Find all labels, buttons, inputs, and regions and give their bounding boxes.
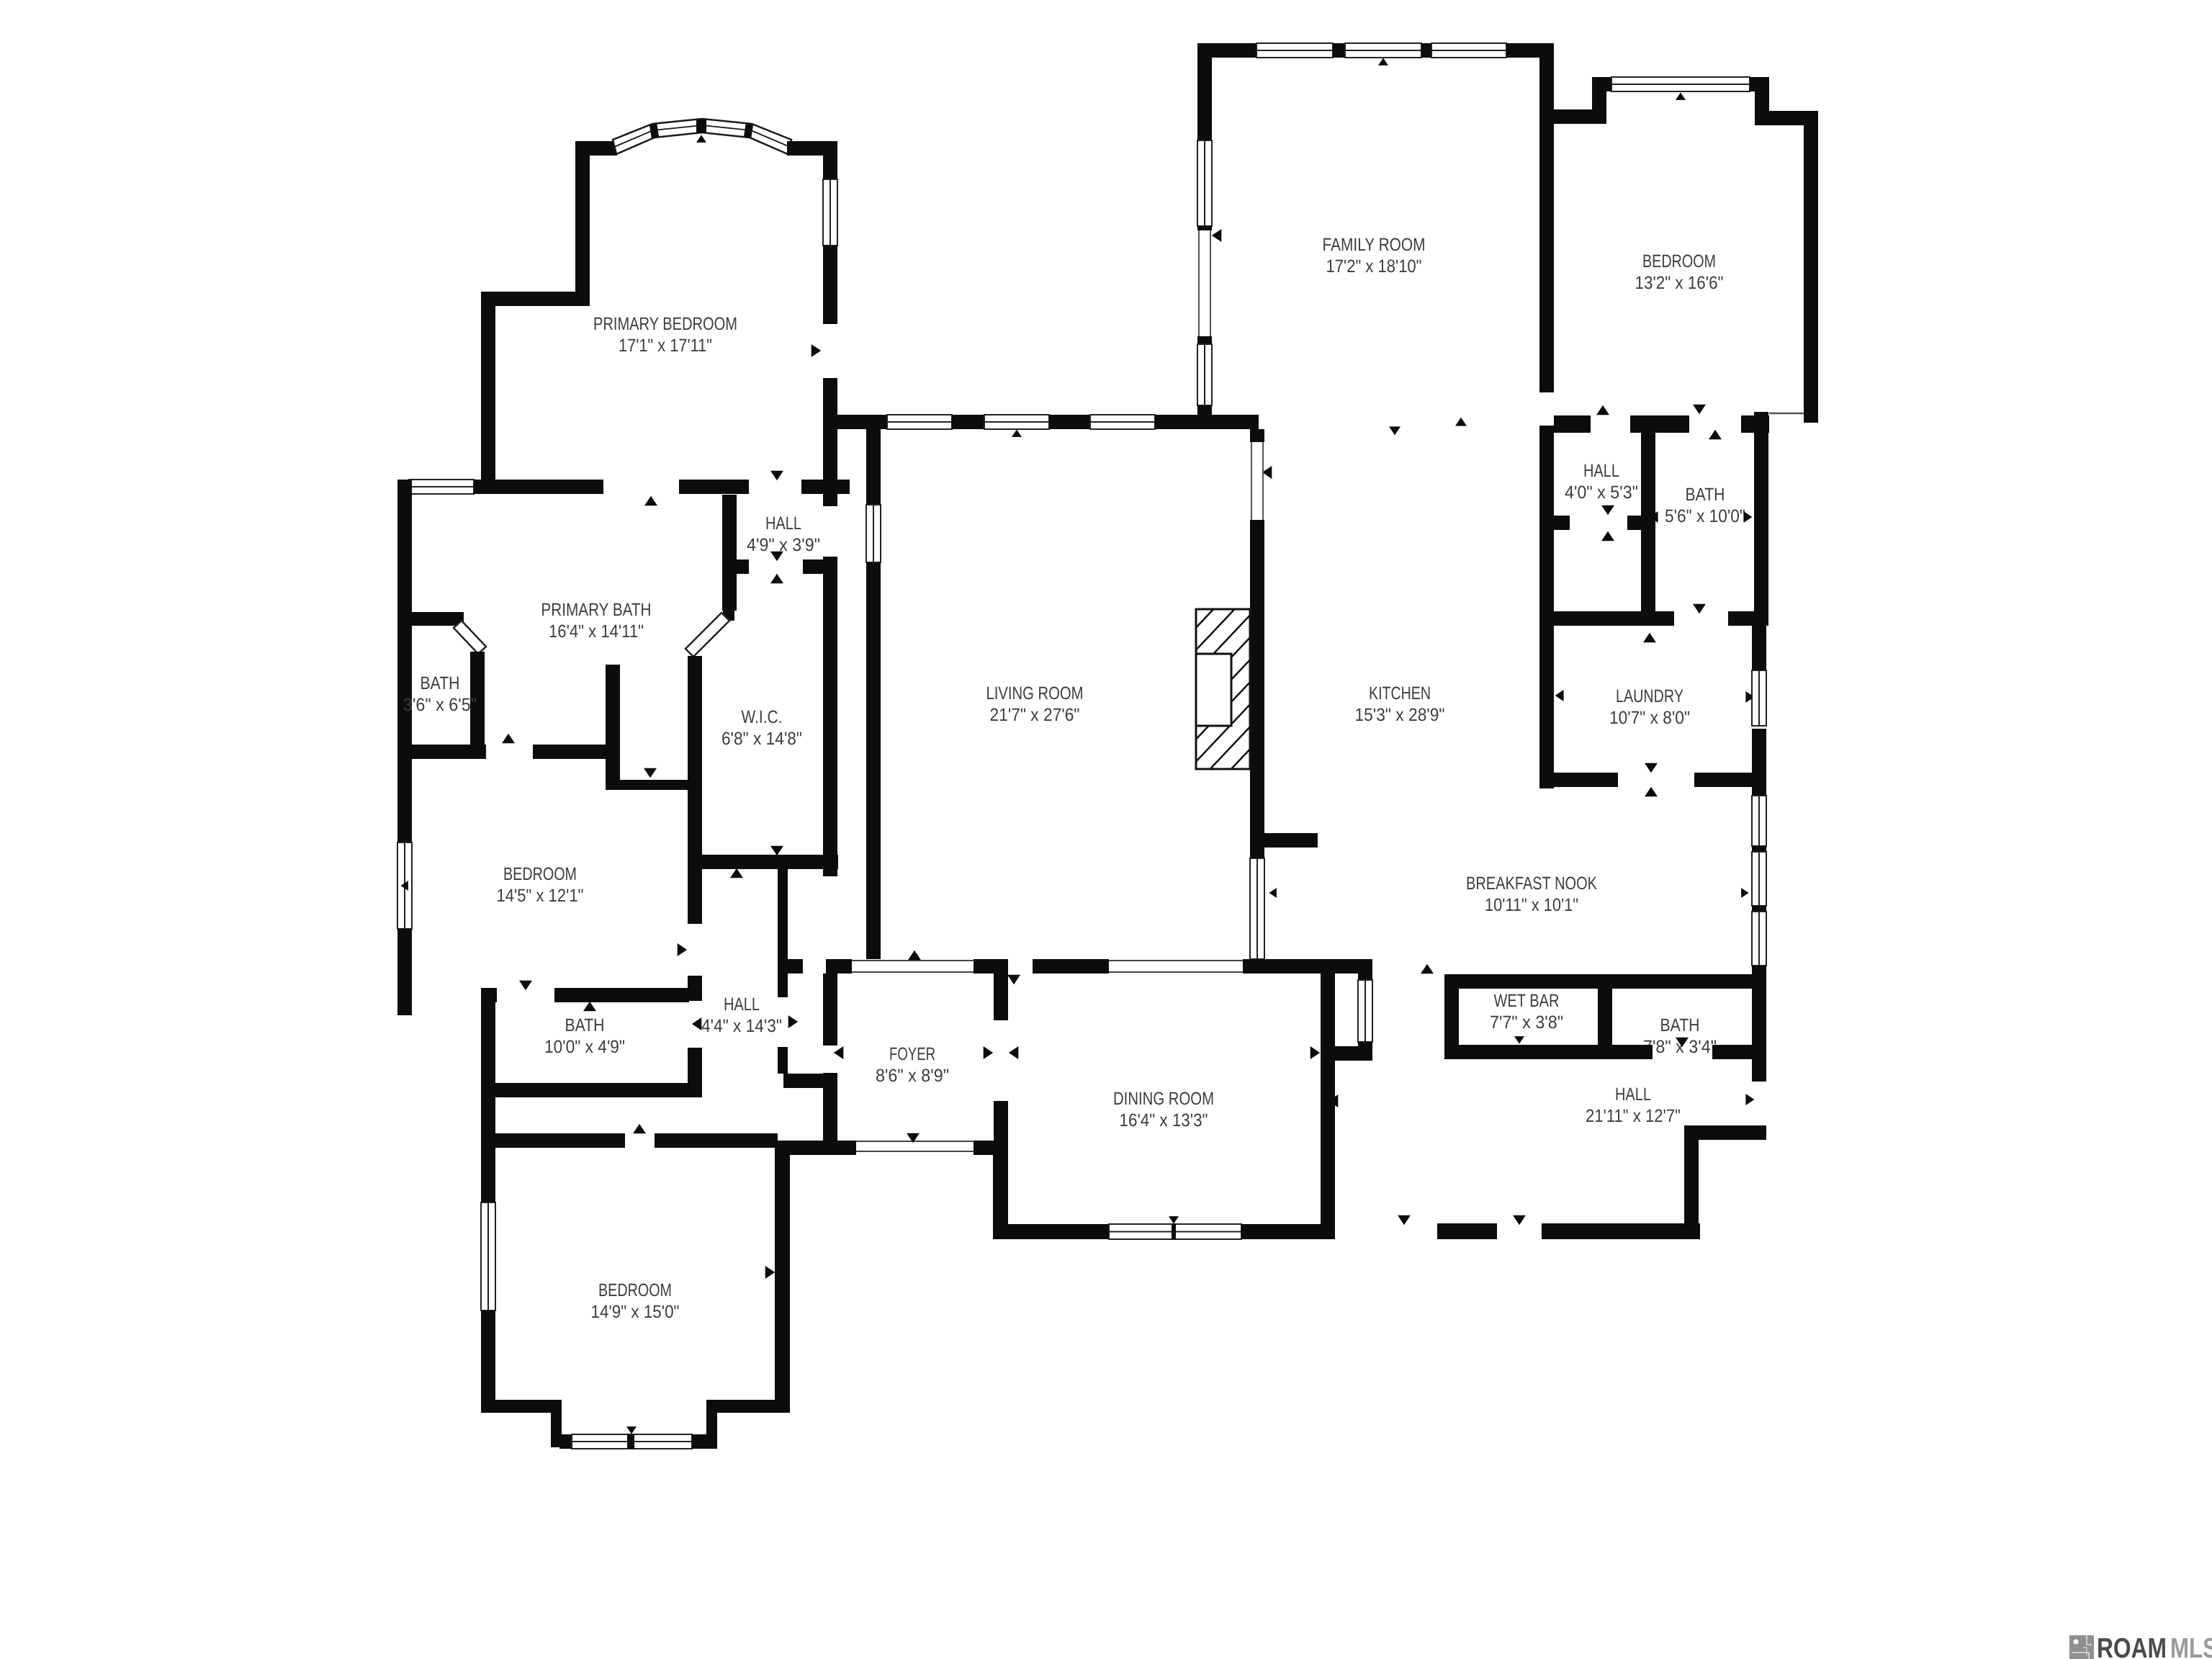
svg-text:6'8" x 14'8": 6'8" x 14'8" — [721, 729, 802, 749]
svg-text:5'6" x 10'0": 5'6" x 10'0" — [1665, 506, 1745, 526]
svg-text:10'11" x 10'1": 10'11" x 10'1" — [1485, 895, 1578, 915]
svg-text:HALL: HALL — [1615, 1084, 1651, 1105]
svg-text:HALL: HALL — [724, 994, 760, 1015]
svg-text:21'11" x 12'7": 21'11" x 12'7" — [1586, 1106, 1681, 1126]
svg-text:4'4" x 14'3": 4'4" x 14'3" — [701, 1016, 782, 1036]
svg-text:13'2" x 16'6": 13'2" x 16'6" — [1635, 273, 1724, 293]
svg-text:DINING ROOM: DINING ROOM — [1113, 1089, 1214, 1109]
svg-text:BATH: BATH — [565, 1015, 605, 1035]
svg-text:FAMILY ROOM: FAMILY ROOM — [1323, 235, 1426, 255]
svg-text:LAUNDRY: LAUNDRY — [1616, 686, 1683, 706]
svg-text:BATH: BATH — [1686, 485, 1725, 505]
svg-text:BREAKFAST NOOK: BREAKFAST NOOK — [1466, 873, 1597, 894]
svg-text:10'0" x 4'9": 10'0" x 4'9" — [544, 1037, 625, 1057]
svg-text:LIVING ROOM: LIVING ROOM — [986, 683, 1084, 703]
svg-text:BEDROOM: BEDROOM — [1642, 251, 1716, 271]
svg-text:PRIMARY BATH: PRIMARY BATH — [541, 600, 652, 620]
svg-text:MLS: MLS — [2170, 1633, 2212, 1659]
svg-text:8'6" x 8'9": 8'6" x 8'9" — [876, 1066, 949, 1086]
svg-text:W.I.C.: W.I.C. — [742, 707, 783, 727]
svg-text:BEDROOM: BEDROOM — [598, 1280, 672, 1300]
svg-text:10'7" x 8'0": 10'7" x 8'0" — [1609, 708, 1690, 728]
svg-text:4'9" x 3'9": 4'9" x 3'9" — [747, 535, 820, 555]
svg-text:PRIMARY BEDROOM: PRIMARY BEDROOM — [593, 314, 737, 334]
svg-text:HALL: HALL — [1583, 461, 1619, 481]
svg-text:BEDROOM: BEDROOM — [503, 864, 577, 884]
svg-text:KITCHEN: KITCHEN — [1369, 683, 1431, 703]
svg-text:14'9" x 15'0": 14'9" x 15'0" — [591, 1302, 680, 1322]
svg-text:15'3" x 28'9": 15'3" x 28'9" — [1355, 705, 1445, 725]
svg-text:HALL: HALL — [765, 513, 801, 534]
svg-text:ROAM: ROAM — [2097, 1633, 2167, 1659]
svg-text:4'0" x 5'3": 4'0" x 5'3" — [1565, 482, 1638, 503]
svg-text:16'4" x 13'3": 16'4" x 13'3" — [1120, 1110, 1208, 1130]
svg-text:17'2" x 18'10": 17'2" x 18'10" — [1326, 256, 1422, 276]
svg-text:16'4" x 14'11": 16'4" x 14'11" — [549, 621, 644, 642]
svg-text:WET BAR: WET BAR — [1494, 991, 1560, 1011]
svg-text:14'5" x 12'1": 14'5" x 12'1" — [497, 886, 584, 906]
svg-text:3'6" x 6'5": 3'6" x 6'5" — [403, 695, 477, 715]
svg-text:FOYER: FOYER — [889, 1044, 935, 1064]
svg-text:BATH: BATH — [421, 673, 460, 693]
svg-text:17'1" x 17'11": 17'1" x 17'11" — [619, 336, 712, 356]
svg-text:21'7" x 27'6": 21'7" x 27'6" — [990, 705, 1080, 725]
svg-text:7'7" x 3'8": 7'7" x 3'8" — [1490, 1012, 1563, 1033]
svg-text:BATH: BATH — [1660, 1015, 1700, 1035]
